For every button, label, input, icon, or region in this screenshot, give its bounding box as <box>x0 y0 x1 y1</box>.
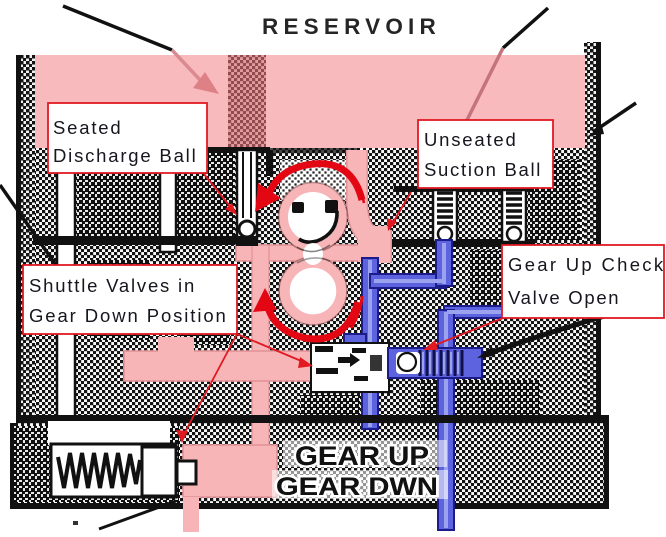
svg-text:Gear Up Check: Gear Up Check <box>508 254 665 275</box>
svg-text:RESERVOIR: RESERVOIR <box>262 14 441 39</box>
svg-text:Unseated: Unseated <box>424 129 518 150</box>
svg-text:Gear Down Position: Gear Down Position <box>29 305 228 326</box>
svg-text:Suction Ball: Suction Ball <box>424 159 542 180</box>
svg-text:Valve Open: Valve Open <box>508 287 620 308</box>
svg-text:Shuttle Valves in: Shuttle Valves in <box>29 275 196 296</box>
svg-text:Seated: Seated <box>53 117 122 138</box>
svg-text:Discharge Ball: Discharge Ball <box>53 145 197 166</box>
svg-text:GEAR DWN: GEAR DWN <box>276 473 438 501</box>
svg-text:GEAR UP: GEAR UP <box>295 441 429 471</box>
